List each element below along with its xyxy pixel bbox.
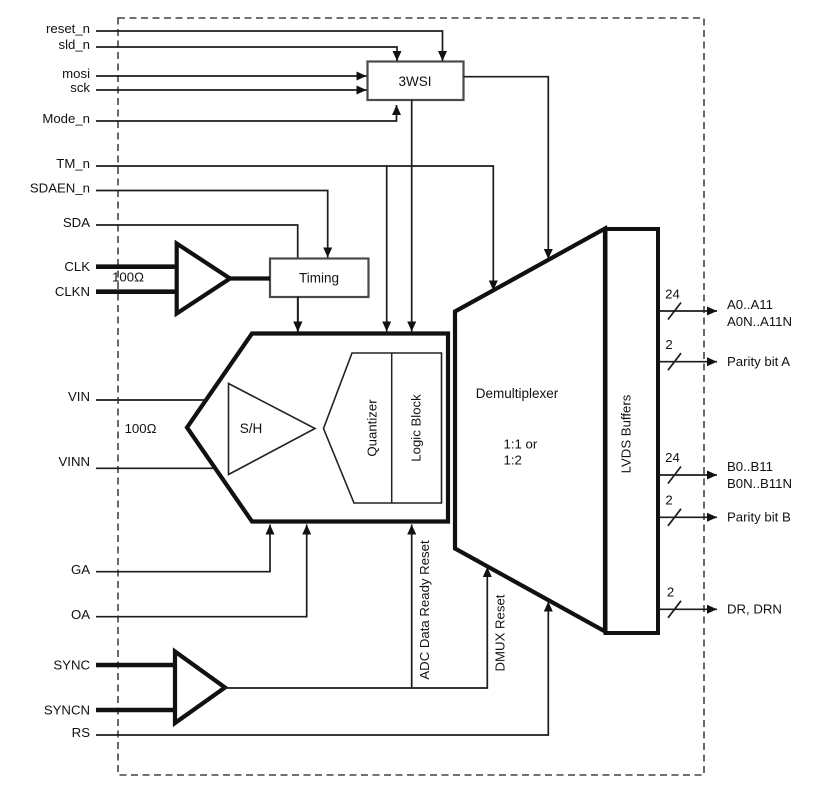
pin-label-sld-n: sld_n — [58, 37, 90, 52]
dr-label: DR, DRN — [727, 602, 782, 617]
bus-a-width: 24 — [665, 287, 680, 302]
parity-a-width: 2 — [665, 337, 672, 352]
oa-line — [96, 525, 307, 617]
vin-termination-label: 100Ω — [125, 421, 157, 436]
pin-label-reset-n: reset_n — [46, 21, 90, 36]
pin-label-oa: OA — [71, 607, 90, 622]
pin-label-sda: SDA — [63, 215, 90, 230]
dmux-reset-label: DMUX Reset — [493, 594, 508, 671]
adc-data-ready-reset-label: ADC Data Ready Reset — [417, 540, 432, 680]
quantizer-label: Quantizer — [365, 399, 380, 457]
sdaen-n-line — [96, 191, 328, 258]
reset-n-line — [96, 31, 443, 61]
sample-hold-label: S/H — [240, 421, 263, 436]
diagram-canvas: reset_n sld_n mosi sck Mode_n TM_n SDAEN… — [0, 0, 834, 794]
lvds-buffers-label: LVDS Buffers — [619, 394, 634, 473]
pin-label-sync: SYNC — [53, 658, 90, 673]
bus-b-width: 24 — [665, 450, 680, 465]
clock-buffer-triangle — [177, 244, 230, 314]
demux-ratio-label-2: 1:2 — [504, 453, 522, 468]
pin-label-mosi: mosi — [62, 66, 90, 81]
parity-a-label: Parity bit A — [727, 354, 790, 369]
bus-a-label-1: A0..A11 — [727, 297, 773, 312]
parity-b-label: Parity bit B — [727, 510, 791, 525]
ga-line — [96, 525, 270, 572]
rs-line — [96, 602, 548, 736]
clk-termination-label: 100Ω — [112, 270, 144, 285]
pin-label-clk: CLK — [64, 259, 90, 274]
mode-n-line — [96, 105, 397, 121]
sync-buffer-triangle — [175, 652, 225, 724]
wsi-label: 3WSI — [398, 74, 431, 89]
dr-width: 2 — [667, 585, 674, 600]
pin-label-rs: RS — [72, 725, 91, 740]
timing-label: Timing — [299, 271, 339, 286]
pin-label-vin: VIN — [68, 389, 90, 404]
wsi-to-demux-line — [463, 77, 548, 259]
pin-label-tm-n: TM_n — [56, 156, 90, 171]
parity-b-width: 2 — [665, 493, 672, 508]
pin-label-ga: GA — [71, 562, 90, 577]
logic-block-label: Logic Block — [409, 394, 424, 462]
bus-b-label-2: B0N..B11N — [727, 476, 792, 491]
pin-label-mode-n: Mode_n — [42, 111, 90, 126]
pin-label-clkn: CLKN — [55, 284, 90, 299]
demux-ratio-label-1: 1:1 or — [504, 437, 538, 452]
pin-label-sdaen-n: SDAEN_n — [30, 181, 90, 196]
dmux-reset-line — [224, 567, 487, 688]
block-diagram: reset_n sld_n mosi sck Mode_n TM_n SDAEN… — [0, 0, 834, 794]
pin-label-vinn: VINN — [58, 454, 90, 469]
sld-n-line — [96, 47, 397, 61]
pin-label-sck: sck — [70, 80, 90, 95]
pin-label-syncn: SYNCN — [44, 703, 90, 718]
demultiplexer-shape — [455, 229, 605, 632]
bus-a-label-2: A0N..A11N — [727, 314, 792, 329]
bus-b-label-1: B0..B11 — [727, 459, 773, 474]
demux-label: Demultiplexer — [476, 386, 559, 401]
